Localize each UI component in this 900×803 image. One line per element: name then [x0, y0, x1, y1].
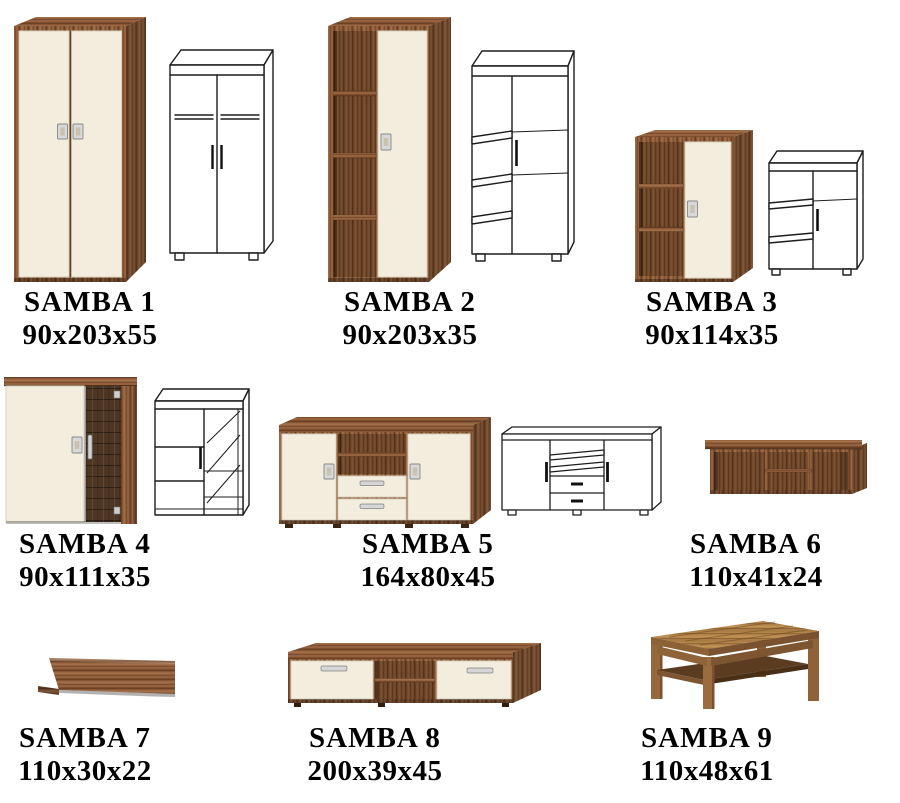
product-label: SAMBA 4 90x111x35 — [5, 528, 165, 594]
product-card-samba-7: SAMBA 7 110x30x22 — [0, 600, 230, 803]
product-label: SAMBA 8 200x39x45 — [295, 722, 455, 788]
product-label: SAMBA 7 110x30x22 — [5, 722, 165, 788]
samba-5-line-drawing — [500, 424, 663, 516]
samba-1-line-drawing — [167, 45, 277, 267]
product-card-samba-1: SAMBA 1 90x203x55 — [0, 0, 290, 360]
product-label: SAMBA 9 110x48x61 — [627, 722, 787, 788]
samba-8-photo — [288, 640, 541, 710]
product-dimensions: 110x41x24 — [676, 561, 836, 594]
product-name: SAMBA 9 — [627, 722, 787, 755]
product-card-samba-8: SAMBA 8 200x39x45 — [270, 600, 600, 803]
product-name: SAMBA 2 — [330, 286, 490, 319]
samba-1-photo — [10, 14, 146, 284]
product-name: SAMBA 4 — [5, 528, 165, 561]
samba-4-line-drawing — [152, 385, 256, 523]
product-dimensions: 90x203x55 — [10, 319, 170, 352]
product-card-samba-4: SAMBA 4 90x111x35 — [0, 370, 270, 595]
product-dimensions: 90x111x35 — [5, 561, 165, 594]
product-name: SAMBA 5 — [348, 528, 508, 561]
samba-4-photo — [4, 377, 137, 524]
samba-7-photo — [35, 652, 185, 704]
samba-2-photo — [325, 14, 451, 284]
product-name: SAMBA 6 — [676, 528, 836, 561]
product-name: SAMBA 7 — [5, 722, 165, 755]
product-card-samba-2: SAMBA 2 90x203x35 — [300, 0, 600, 360]
product-dimensions: 110x30x22 — [5, 755, 165, 788]
door-handle — [381, 134, 391, 150]
product-dimensions: 90x203x35 — [330, 319, 490, 352]
product-name: SAMBA 3 — [632, 286, 792, 319]
door-handle — [688, 201, 698, 217]
samba-6-photo — [705, 438, 868, 498]
product-card-samba-9: SAMBA 9 110x48x61 — [600, 600, 900, 803]
samba-5-photo — [277, 412, 491, 528]
samba-9-photo — [645, 613, 825, 713]
product-dimensions: 90x114x35 — [632, 319, 792, 352]
samba-3-photo — [632, 128, 753, 285]
product-label: SAMBA 5 164x80x45 — [348, 528, 508, 594]
product-card-samba-6: SAMBA 6 110x41x24 — [670, 370, 900, 595]
product-name: SAMBA 8 — [295, 722, 455, 755]
product-card-samba-5: SAMBA 5 164x80x45 — [270, 370, 670, 595]
product-name: SAMBA 1 — [10, 286, 170, 319]
product-label: SAMBA 2 90x203x35 — [330, 286, 490, 352]
product-label: SAMBA 3 90x114x35 — [632, 286, 792, 352]
samba-2-line-drawing — [468, 44, 580, 266]
product-dimensions: 200x39x45 — [295, 755, 455, 788]
product-label: SAMBA 6 110x41x24 — [676, 528, 836, 594]
product-dimensions: 164x80x45 — [348, 561, 508, 594]
samba-3-line-drawing — [765, 147, 875, 279]
product-card-samba-3: SAMBA 3 90x114x35 — [620, 0, 900, 360]
product-dimensions: 110x48x61 — [627, 755, 787, 788]
product-label: SAMBA 1 90x203x55 — [10, 286, 170, 352]
